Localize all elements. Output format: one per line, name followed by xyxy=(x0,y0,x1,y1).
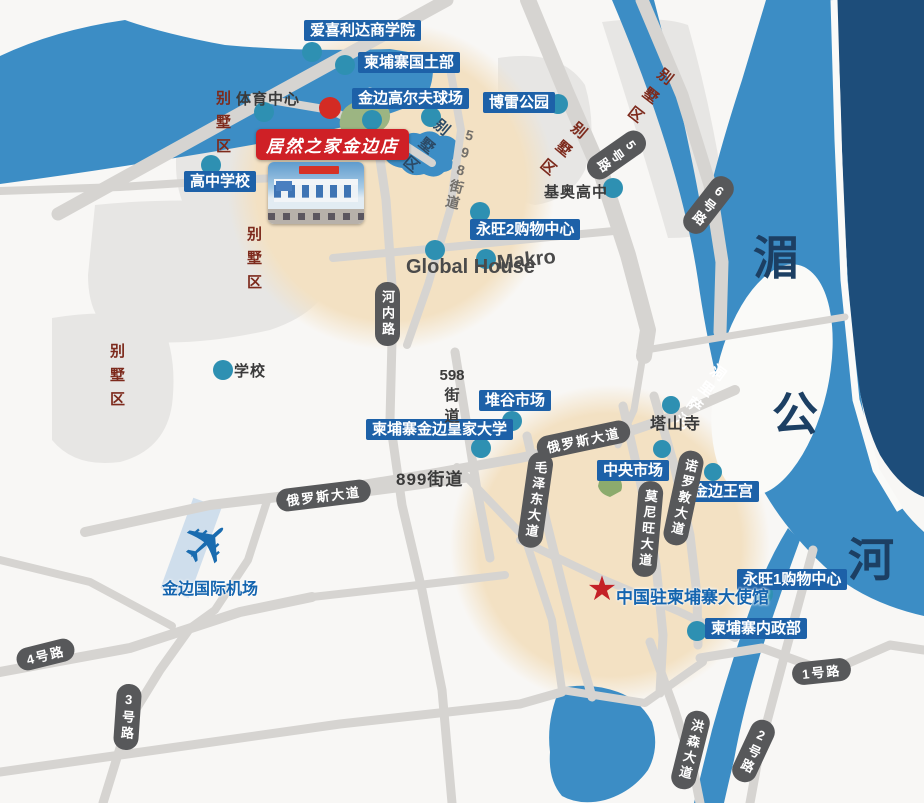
store-label: 居然之家金边店 xyxy=(256,129,409,160)
label-school: 学校 xyxy=(234,360,266,381)
label-street-899: 899街道 xyxy=(396,465,463,490)
villa-area-label: 别墅区 xyxy=(106,343,127,415)
road-pill-hanoi: 河内路 xyxy=(375,282,400,346)
street-598-line: 道 xyxy=(432,407,472,427)
label-business-school: 爱喜利达商学院 xyxy=(304,20,421,41)
street-598-line: 598 xyxy=(432,366,472,386)
villa-area-label: 别墅区 xyxy=(243,226,264,298)
label-tuol-kork-market: 堆谷市场 xyxy=(479,390,551,411)
store-photo-signage xyxy=(299,166,339,174)
label-wat-phnom: 塔山寺 xyxy=(650,410,701,434)
label-interior-ministry: 柬埔寨内政部 xyxy=(705,618,807,639)
mekong-river-char: 河 xyxy=(848,524,894,590)
label-street-598-south: 598 街 道 xyxy=(432,366,472,427)
store-photo-cars xyxy=(268,213,364,220)
phnom-penh-location-map: 湄 公 河 洞里萨河 别墅区 别墅区 别墅区 别墅区 别墅区 别墅区 爱喜利达商… xyxy=(0,0,924,803)
store-photo-billboard xyxy=(276,181,292,191)
embassy-star-icon: ★ xyxy=(583,570,621,608)
label-borey-park: 博雷公园 xyxy=(483,92,555,113)
label-central-market: 中央市场 xyxy=(597,460,669,481)
label-aeon2-mall: 永旺2购物中心 xyxy=(470,219,580,240)
road-pill-3: 3号路 xyxy=(113,683,143,751)
street-598-line: 街 xyxy=(432,386,472,406)
mekong-river-char: 湄 xyxy=(753,222,799,288)
label-golf-course: 金边高尔夫球场 xyxy=(352,88,469,109)
store-photo xyxy=(268,162,364,224)
label-high-school: 高中学校 xyxy=(184,171,256,192)
label-sports-center: 体育中心 xyxy=(236,88,300,109)
store-location-dot xyxy=(319,97,341,119)
label-china-embassy: 中国驻柬埔寨大使馆 xyxy=(616,583,769,608)
label-kio-high-school: 基奥高中 xyxy=(544,181,608,202)
villa-area-label: 别墅区 xyxy=(212,90,233,162)
mekong-river-char: 公 xyxy=(772,378,818,444)
label-land-ministry: 柬埔寨国土部 xyxy=(358,52,460,73)
